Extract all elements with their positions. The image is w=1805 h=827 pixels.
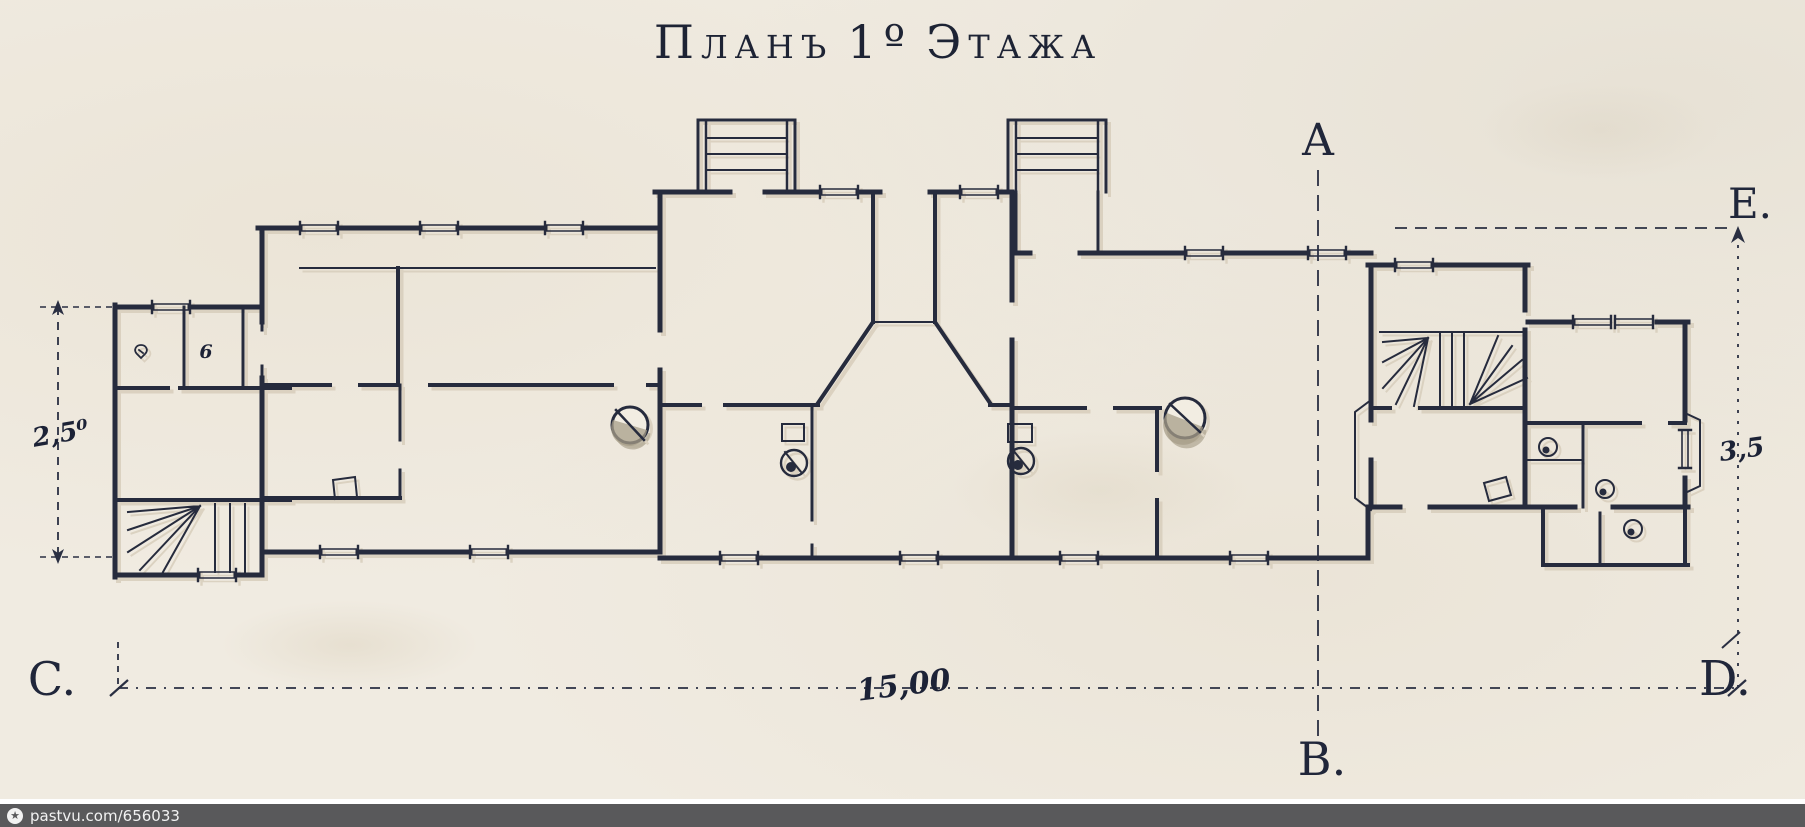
axis-marker-d: D. [1699, 651, 1751, 707]
axis-marker-c: C. [28, 652, 76, 706]
star-circle-icon: ★ [7, 808, 23, 824]
watermark-text: pastvu.com/656033 [30, 807, 180, 825]
dimension-label-bottom: 15,00 [855, 662, 953, 708]
watermark-bar: ★ pastvu.com/656033 [0, 799, 1805, 827]
axis-marker-e: E. [1728, 179, 1772, 228]
dimension-label-left: 2,5⁰ [29, 414, 92, 454]
floor-plan-drawing: Планъ1ºЭтажа A B. C. D. E. 2,5⁰ 15,00 3,… [0, 0, 1805, 827]
page-title: Планъ1ºЭтажа [654, 15, 1102, 69]
dimension-label-right: 3,5 [1717, 432, 1766, 468]
axis-marker-b: B. [1298, 732, 1346, 786]
axis-marker-a: A [1301, 115, 1335, 166]
dimension-lines [40, 170, 1746, 740]
wall-shadow-layer [119, 124, 1704, 585]
scanned-floor-plan-page: Планъ1ºЭтажа A B. C. D. E. 2,5⁰ 15,00 3,… [0, 0, 1805, 827]
fixture-mark: 6 [199, 341, 212, 363]
